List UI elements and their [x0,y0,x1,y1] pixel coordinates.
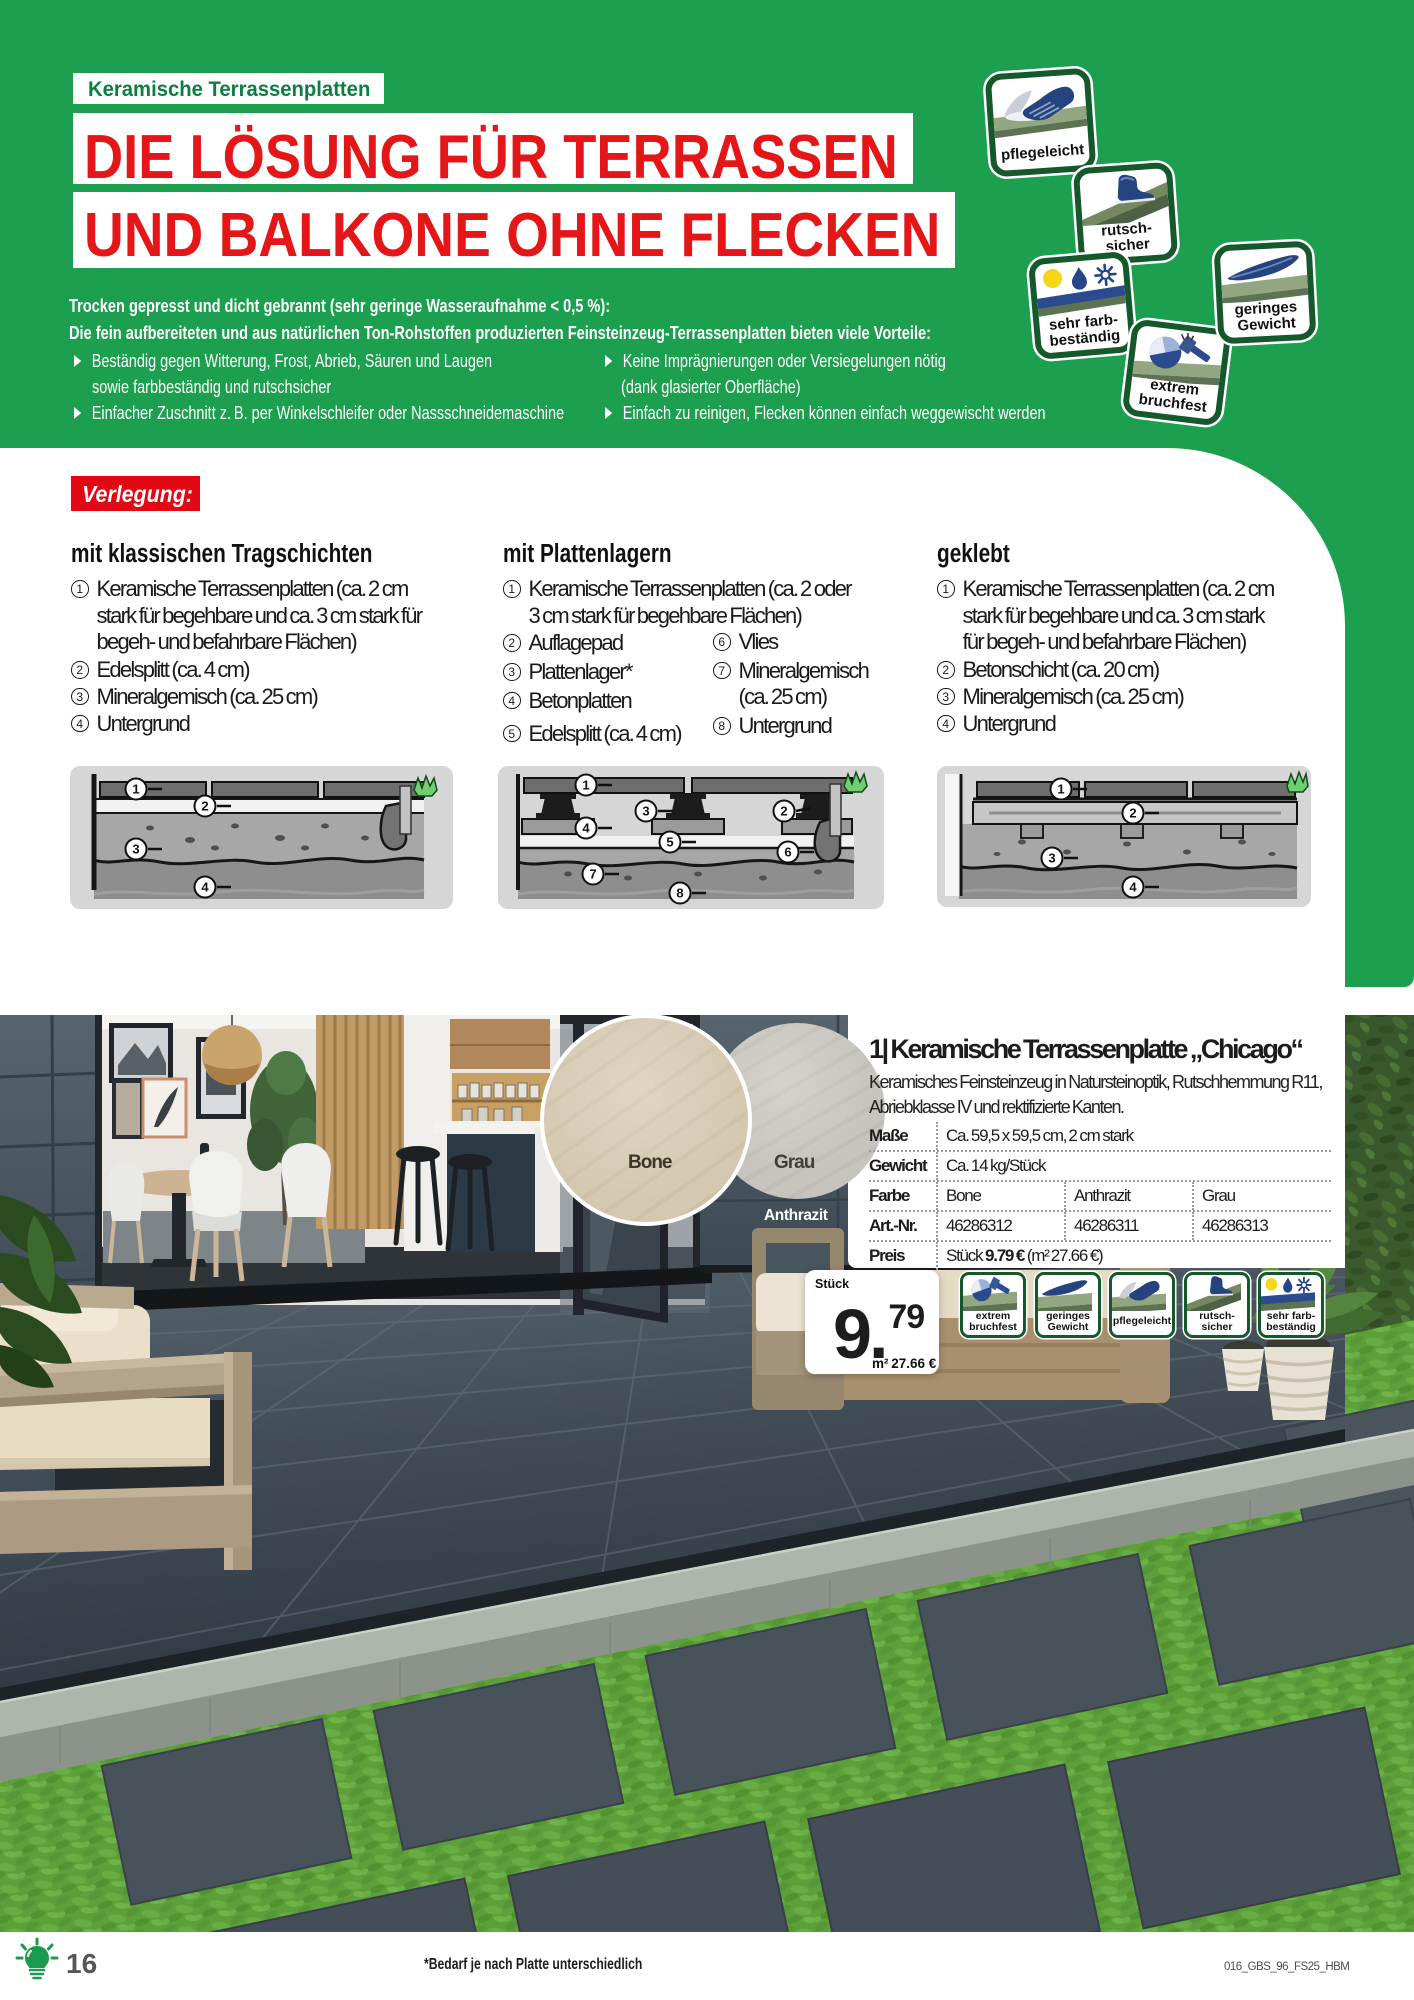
svg-text:4: 4 [1129,880,1137,895]
svg-text:2: 2 [201,799,208,814]
svg-text:8: 8 [676,886,683,901]
svg-text:3: 3 [132,842,139,857]
svg-text:1: 1 [132,782,139,797]
svg-text:1: 1 [1057,782,1064,797]
svg-text:7: 7 [589,867,596,882]
svg-text:2: 2 [780,804,787,819]
svg-text:6: 6 [784,845,791,860]
svg-text:4: 4 [582,821,590,836]
svg-text:3: 3 [1048,851,1055,866]
svg-text:4: 4 [201,880,209,895]
svg-text:3: 3 [642,804,649,819]
svg-text:2: 2 [1129,806,1136,821]
svg-text:5: 5 [666,835,673,850]
svg-text:1: 1 [582,778,589,793]
